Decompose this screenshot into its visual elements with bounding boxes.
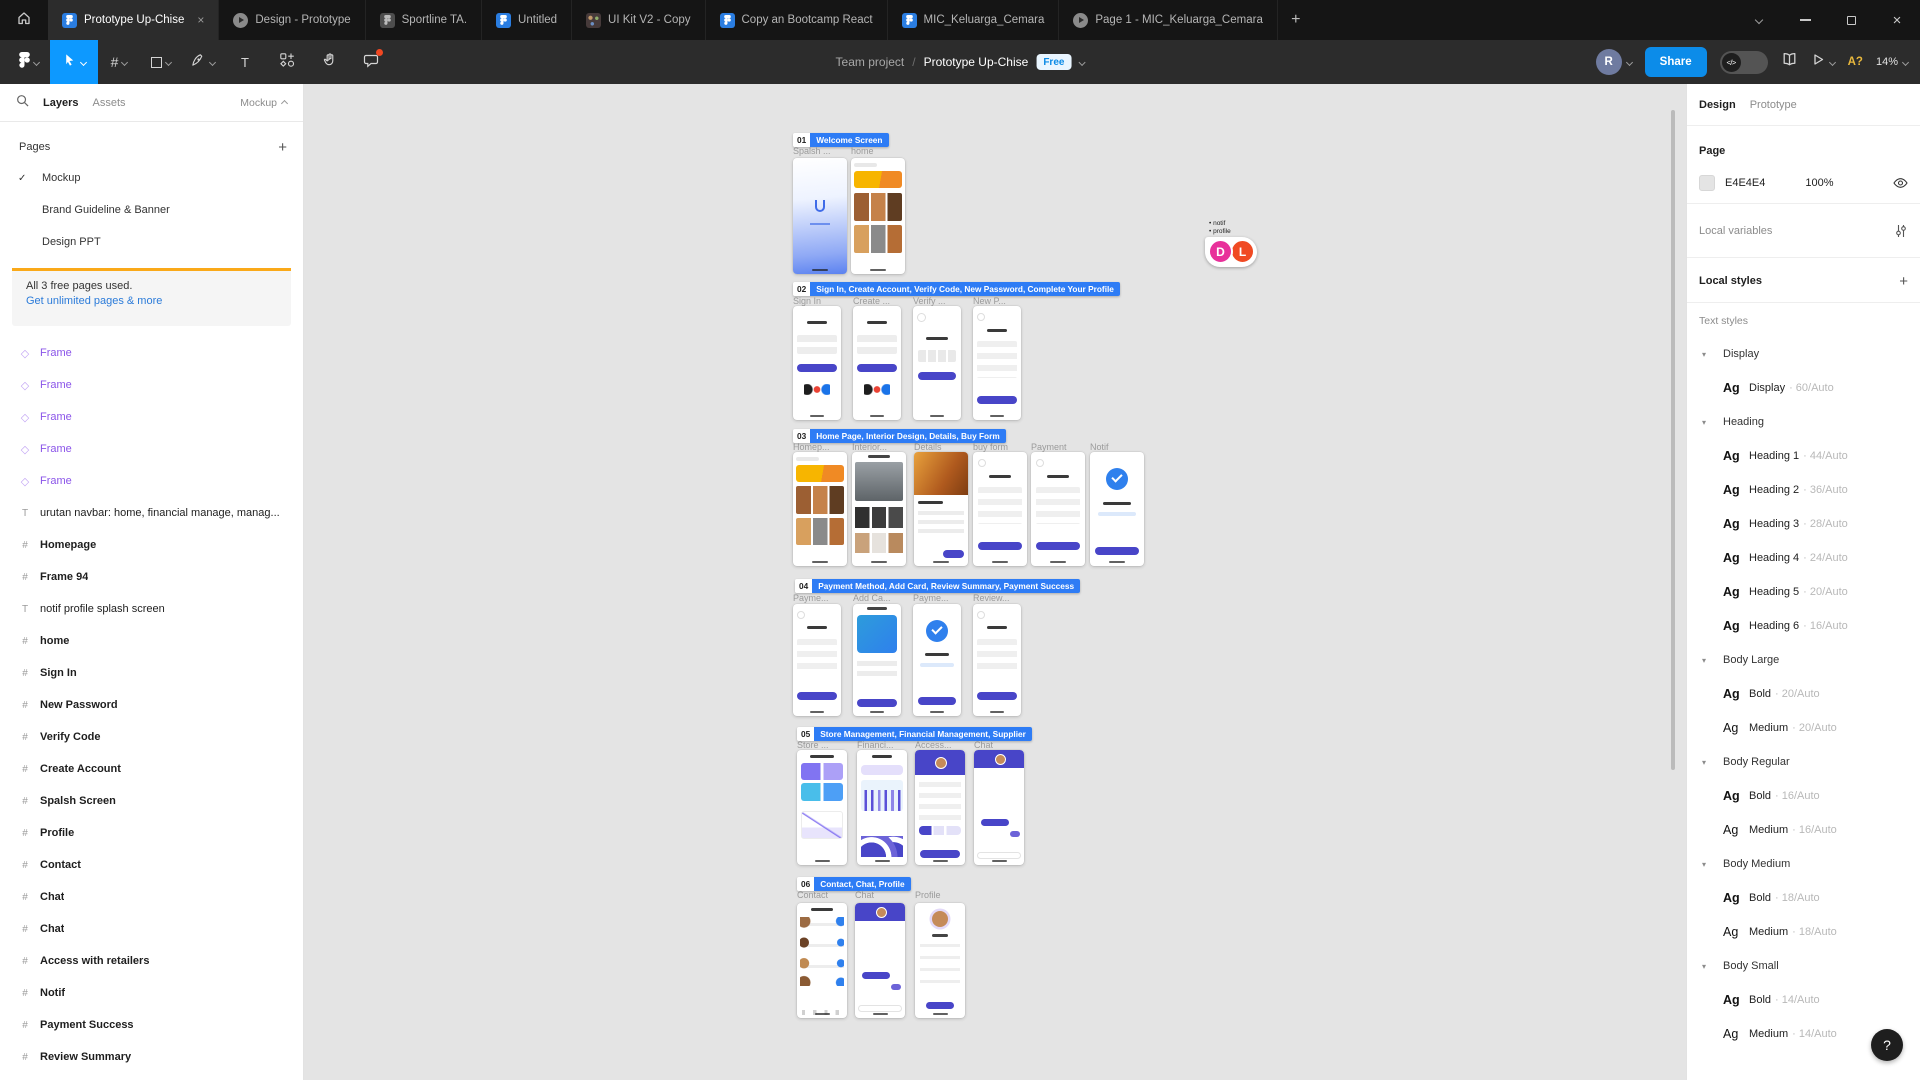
- style-sample: Ag: [1723, 483, 1745, 497]
- variables-sliders-icon[interactable]: [1894, 224, 1908, 238]
- style-row[interactable]: AgHeading 2· 36/Auto: [1687, 473, 1920, 507]
- style-group[interactable]: ▾Display: [1687, 337, 1920, 371]
- file-tab-mic-keluarga-cemara[interactable]: MIC_Keluarga_Cemara: [888, 0, 1060, 40]
- style-sample: Ag: [1723, 687, 1745, 701]
- prototype-play-icon: [1073, 13, 1088, 28]
- breadcrumb-file-name[interactable]: Prototype Up-Chise: [924, 55, 1029, 69]
- frame-title[interactable]: Notif: [1090, 442, 1109, 452]
- tab-label: MIC_Keluarga_Cemara: [924, 14, 1045, 26]
- frame-title[interactable]: Payment: [1031, 442, 1067, 452]
- canvas-frame-buy-form[interactable]: [973, 452, 1027, 566]
- section-number: 06: [797, 877, 814, 891]
- layer-row[interactable]: #Frame 94: [0, 561, 303, 593]
- shape-tool-button[interactable]: [140, 40, 182, 84]
- canvas-frame-verify-code[interactable]: [913, 306, 961, 420]
- style-sample: Ag: [1723, 381, 1745, 395]
- frame-tool-button[interactable]: #: [98, 40, 140, 84]
- tab-label: UI Kit V2 - Copy: [608, 14, 690, 26]
- layer-row[interactable]: ◇Frame: [0, 465, 303, 497]
- style-sample: Ag: [1723, 585, 1745, 599]
- layers-panel: Layers Assets Mockup Pages + ✓ Mockup Br…: [0, 84, 304, 1080]
- file-tab-design-prototype[interactable]: Design - Prototype: [219, 0, 365, 40]
- page-item-design-ppt[interactable]: Design PPT: [0, 226, 303, 258]
- component-instance-icon: ◇: [18, 411, 32, 424]
- canvas-frame-payment-success[interactable]: [913, 604, 961, 716]
- section-number: 03: [793, 429, 810, 443]
- add-page-button[interactable]: +: [278, 139, 287, 156]
- component-instance-icon: ◇: [18, 379, 32, 392]
- layer-row[interactable]: #Verify Code: [0, 721, 303, 753]
- style-row[interactable]: AgHeading 6· 16/Auto: [1687, 609, 1920, 643]
- canvas-frame-access-with-retailers[interactable]: [915, 750, 965, 865]
- frame-layer-icon: #: [18, 572, 32, 583]
- window-restore-button[interactable]: [1828, 0, 1874, 40]
- style-sample: Ag: [1723, 925, 1745, 939]
- layer-row[interactable]: ◇Frame: [0, 337, 303, 369]
- figma-logo-icon: [19, 52, 30, 73]
- layer-row[interactable]: #Profile: [0, 817, 303, 849]
- layer-row[interactable]: #New Password: [0, 689, 303, 721]
- text-layer-icon: T: [18, 604, 32, 615]
- local-styles-label: Local styles: [1699, 275, 1762, 287]
- frame-layer-icon: #: [18, 828, 32, 839]
- layer-row[interactable]: #Chat: [0, 881, 303, 913]
- upgrade-link[interactable]: Get unlimited pages & more: [26, 295, 162, 307]
- frame-layer-icon: #: [18, 764, 32, 775]
- style-sample: Ag: [1723, 1027, 1745, 1041]
- canvas-frame-details[interactable]: [914, 452, 968, 566]
- hand-tool-button[interactable]: [308, 40, 350, 84]
- canvas-frame-payment-method[interactable]: [793, 604, 841, 716]
- pages-limit-notice: All 3 free pages used. Get unlimited pag…: [12, 268, 291, 326]
- local-styles-row[interactable]: Local styles +: [1699, 266, 1908, 296]
- zoom-level: 14%: [1876, 56, 1898, 68]
- tab-prototype[interactable]: Prototype: [1750, 99, 1797, 111]
- canvas-frame-home[interactable]: [851, 158, 905, 274]
- layer-row[interactable]: #Homepage: [0, 529, 303, 561]
- file-tab-sportline[interactable]: Sportline TA.: [366, 0, 482, 40]
- color-hex-value[interactable]: E4E4E4: [1725, 177, 1765, 189]
- frame-title[interactable]: Payme...: [793, 593, 829, 603]
- layer-list: ◇Frame ◇Frame ◇Frame ◇Frame ◇Frame Turut…: [0, 337, 303, 1080]
- window-menu-chevron-icon[interactable]: [1736, 0, 1782, 40]
- frame-title[interactable]: Chat: [974, 740, 993, 750]
- section-title: Welcome Screen: [810, 133, 888, 147]
- section-number: 01: [793, 133, 810, 147]
- palette-icon: [586, 13, 601, 28]
- figma-file-icon: [720, 13, 735, 28]
- chevron-down-icon: [165, 58, 172, 65]
- layer-row[interactable]: #Review Summary: [0, 1041, 303, 1073]
- layer-row[interactable]: Turutan navbar: home, financial manage, …: [0, 497, 303, 529]
- style-row[interactable]: AgHeading 3· 28/Auto: [1687, 507, 1920, 541]
- canvas-frame-review-summary[interactable]: [973, 604, 1021, 716]
- style-row[interactable]: AgHeading 4· 24/Auto: [1687, 541, 1920, 575]
- file-tab-ui-kit-v2[interactable]: UI Kit V2 - Copy: [572, 0, 705, 40]
- figma-menu-button[interactable]: [8, 40, 50, 84]
- chevron-up-icon: [281, 100, 288, 107]
- cursor-icon: [62, 52, 77, 72]
- prototype-play-icon: [233, 13, 248, 28]
- canvas-frame-store-management[interactable]: [797, 750, 847, 865]
- layer-row[interactable]: #home: [0, 625, 303, 657]
- page-item-mockup[interactable]: ✓ Mockup: [0, 162, 303, 194]
- disclosure-triangle-icon[interactable]: ▾: [1702, 350, 1718, 359]
- code-icon: </>: [1722, 53, 1741, 72]
- tab-label: Sportline TA.: [402, 14, 467, 26]
- style-sample: Ag: [1723, 891, 1745, 905]
- chevron-down-icon: [1902, 58, 1909, 65]
- disclosure-triangle-icon[interactable]: ▾: [1702, 418, 1718, 427]
- style-sample: Ag: [1723, 517, 1745, 531]
- section-number: 02: [793, 282, 810, 296]
- frame-title[interactable]: Sign In: [793, 296, 821, 306]
- chevron-down-icon: [33, 58, 40, 65]
- frame-title[interactable]: Create ...: [853, 296, 890, 306]
- section-badge-03[interactable]: 03 Home Page, Interior Design, Details, …: [793, 429, 1006, 443]
- notification-dot: [376, 49, 383, 56]
- pen-icon: [191, 52, 206, 72]
- section-badge-01[interactable]: 01 Welcome Screen: [793, 133, 889, 147]
- hand-icon: [322, 52, 337, 72]
- frame-layer-icon: #: [18, 988, 32, 999]
- style-row[interactable]: AgBold· 20/Auto: [1687, 677, 1920, 711]
- layer-row[interactable]: #Access with retailers: [0, 945, 303, 977]
- home-button[interactable]: [0, 0, 48, 40]
- file-tab-prototype-up-chise[interactable]: Prototype Up-Chise ×: [48, 0, 219, 40]
- style-row[interactable]: AgMedium· 18/Auto: [1687, 915, 1920, 949]
- page-name: Design PPT: [42, 236, 101, 248]
- tab-label: Page 1 - MIC_Keluarga_Cemara: [1095, 14, 1262, 26]
- style-group[interactable]: ▾Heading: [1687, 405, 1920, 439]
- canvas-frame-sign-in[interactable]: [793, 306, 841, 420]
- section-badge-05[interactable]: 05 Store Management, Financial Managemen…: [797, 727, 1032, 741]
- canvas-frame-contact[interactable]: [797, 903, 847, 1018]
- chevron-down-icon: [1829, 58, 1836, 65]
- disclosure-triangle-icon[interactable]: ▾: [1702, 656, 1718, 665]
- play-icon: [1811, 52, 1825, 72]
- zoom-menu[interactable]: 14%: [1876, 56, 1908, 68]
- frame-layer-icon: #: [18, 1020, 32, 1031]
- component-instance-icon: ◇: [18, 443, 32, 456]
- frame-title[interactable]: Review...: [973, 593, 1010, 603]
- frame-layer-icon: #: [18, 924, 32, 935]
- canvas[interactable]: 01 Welcome Screen Spalsh ... home 02 Sig…: [304, 84, 1686, 1080]
- frame-title[interactable]: Access...: [915, 740, 952, 750]
- vertical-scrollbar[interactable]: [1671, 110, 1675, 770]
- section-badge-06[interactable]: 06 Contact, Chat, Profile: [797, 877, 911, 891]
- page-color-row: E4E4E4 100%: [1699, 168, 1908, 198]
- tab-label: Prototype Up-Chise: [84, 14, 184, 26]
- frame-title[interactable]: Financi...: [857, 740, 894, 750]
- present-button[interactable]: [1811, 52, 1835, 72]
- frame-title[interactable]: Payme...: [913, 593, 949, 603]
- text-styles-header: Text styles: [1699, 308, 1748, 334]
- tab-assets[interactable]: Assets: [92, 97, 125, 109]
- frame-title[interactable]: buy form: [973, 442, 1008, 452]
- section-title: Home Page, Interior Design, Details, Buy…: [810, 429, 1006, 443]
- close-tab-icon[interactable]: ×: [197, 14, 204, 26]
- style-row[interactable]: AgBold· 14/Auto: [1687, 983, 1920, 1017]
- frame-layer-icon: #: [18, 860, 32, 871]
- canvas-frame-profile[interactable]: [915, 903, 965, 1018]
- chevron-down-icon: [209, 58, 216, 65]
- frame-title[interactable]: Contact: [797, 890, 828, 900]
- section-badge-02[interactable]: 02 Sign In, Create Account, Verify Code,…: [793, 282, 1120, 296]
- frame-layer-icon: #: [18, 732, 32, 743]
- chevron-down-icon: [1626, 58, 1633, 65]
- frame-layer-icon: #: [18, 956, 32, 967]
- file-tab-untitled[interactable]: Untitled: [482, 0, 572, 40]
- section-title: Sign In, Create Account, Verify Code, Ne…: [810, 282, 1120, 296]
- component-instance-icon: ◇: [18, 475, 32, 488]
- style-row[interactable]: AgBold· 18/Auto: [1687, 881, 1920, 915]
- library-book-icon[interactable]: [1781, 52, 1798, 72]
- window-controls: ×: [1736, 0, 1920, 40]
- opacity-value[interactable]: 100%: [1805, 177, 1833, 189]
- section-title: Store Management, Financial Management, …: [814, 727, 1032, 741]
- local-variables-row[interactable]: Local variables: [1699, 216, 1908, 246]
- frame-layer-icon: #: [18, 1052, 32, 1063]
- page-dropdown-label: Mockup: [240, 97, 277, 109]
- frame-layer-icon: #: [18, 700, 32, 711]
- layer-row[interactable]: #Payment Success: [0, 1009, 303, 1041]
- plan-badge: Free: [1036, 54, 1071, 70]
- frame-layer-icon: #: [18, 796, 32, 807]
- frame-layer-icon: #: [18, 668, 32, 679]
- layer-row[interactable]: #Sign In: [0, 657, 303, 689]
- notice-message: All 3 free pages used.: [26, 280, 277, 292]
- canvas-frame-homepage[interactable]: [793, 452, 847, 566]
- style-sample: Ag: [1723, 823, 1745, 837]
- style-row[interactable]: AgDisplay· 60/Auto: [1687, 371, 1920, 405]
- frame-title[interactable]: home: [851, 146, 874, 156]
- disclosure-triangle-icon[interactable]: ▾: [1702, 962, 1718, 971]
- check-icon: ✓: [18, 173, 34, 184]
- layer-row[interactable]: #Create Account: [0, 753, 303, 785]
- frame-layer-icon: #: [18, 636, 32, 647]
- actions-icon: [279, 52, 295, 73]
- tab-design[interactable]: Design: [1699, 99, 1736, 111]
- section-title: Payment Method, Add Card, Review Summary…: [812, 579, 1080, 593]
- frame-title[interactable]: Homep...: [793, 442, 830, 452]
- collaborator-avatar-l: L: [1230, 239, 1255, 264]
- figma-file-icon: [380, 13, 395, 28]
- frame-title[interactable]: Spalsh ...: [793, 146, 831, 156]
- disclosure-triangle-icon[interactable]: ▾: [1702, 860, 1718, 869]
- canvas-frame-create-account[interactable]: [853, 306, 901, 420]
- tab-label: Copy an Bootcamp React: [742, 14, 873, 26]
- pages-header: Pages: [19, 141, 50, 153]
- tab-label: Design - Prototype: [255, 14, 350, 26]
- toolbar: # T Team project / Prototype Up-Chise Fr…: [0, 40, 1920, 84]
- style-group[interactable]: ▾Body Large: [1687, 643, 1920, 677]
- collaborator-avatar-d: D: [1208, 239, 1233, 264]
- style-row[interactable]: AgMedium· 16/Auto: [1687, 813, 1920, 847]
- frame-title[interactable]: Add Ca...: [853, 593, 891, 603]
- frame-title[interactable]: New P...: [973, 296, 1006, 306]
- section-badge-04[interactable]: 04 Payment Method, Add Card, Review Summ…: [795, 579, 1080, 593]
- style-sample: Ag: [1723, 721, 1745, 735]
- layer-row[interactable]: ◇Frame: [0, 401, 303, 433]
- page-section-title: Page: [1699, 136, 1725, 166]
- current-user-menu[interactable]: R: [1596, 49, 1632, 75]
- style-sample: Ag: [1723, 993, 1745, 1007]
- style-row[interactable]: AgMedium· 20/Auto: [1687, 711, 1920, 745]
- canvas-frame-add-card[interactable]: [853, 604, 901, 716]
- page-dropdown[interactable]: Mockup: [240, 97, 287, 109]
- style-group[interactable]: ▾Body Regular: [1687, 745, 1920, 779]
- frame-title[interactable]: Interior...: [852, 442, 887, 452]
- avatar: R: [1596, 49, 1622, 75]
- window-close-button[interactable]: ×: [1874, 0, 1920, 40]
- layer-row[interactable]: #Chat: [0, 913, 303, 945]
- disclosure-triangle-icon[interactable]: ▾: [1702, 758, 1718, 767]
- frame-title[interactable]: Details: [914, 442, 942, 452]
- frame-title[interactable]: Store ...: [797, 740, 829, 750]
- tab-layers[interactable]: Layers: [43, 97, 78, 109]
- style-sample: Ag: [1723, 789, 1745, 803]
- frame-title[interactable]: Chat: [855, 890, 874, 900]
- canvas-frame-chat-2[interactable]: [855, 903, 905, 1018]
- style-row[interactable]: AgHeading 1· 44/Auto: [1687, 439, 1920, 473]
- frame-title[interactable]: Verify ...: [913, 296, 946, 306]
- figma-file-icon: [62, 13, 77, 28]
- text-layer-icon: T: [18, 508, 32, 519]
- search-icon[interactable]: [16, 94, 29, 112]
- text-styles-list: ▾Display AgDisplay· 60/Auto ▾Heading AgH…: [1687, 337, 1920, 1080]
- text-icon: T: [241, 55, 249, 70]
- canvas-frame-spalsh-screen[interactable]: [793, 158, 847, 274]
- frame-title[interactable]: Profile: [915, 890, 941, 900]
- component-instance-icon: ◇: [18, 347, 32, 360]
- canvas-frame-payment[interactable]: [1031, 452, 1085, 566]
- frame-icon: #: [111, 54, 119, 70]
- style-sample: Ag: [1723, 449, 1745, 463]
- share-button[interactable]: Share: [1645, 47, 1707, 77]
- pen-tool-button[interactable]: [182, 40, 224, 84]
- figma-file-icon: [496, 13, 511, 28]
- section-title: Contact, Chat, Profile: [814, 877, 910, 891]
- add-style-plus-icon[interactable]: +: [1899, 273, 1908, 290]
- color-swatch[interactable]: [1699, 175, 1715, 191]
- page-name: Mockup: [42, 172, 81, 184]
- layer-row[interactable]: Tnotif profile splash screen: [0, 593, 303, 625]
- file-tab-page1-mic-keluarga-cemara[interactable]: Page 1 - MIC_Keluarga_Cemara: [1059, 0, 1277, 40]
- layer-row[interactable]: ◇Frame: [0, 369, 303, 401]
- style-group[interactable]: ▾Body Small: [1687, 949, 1920, 983]
- collaborator-note: • notif • profile: [1209, 220, 1231, 236]
- style-sample: Ag: [1723, 551, 1745, 565]
- frame-layer-icon: #: [18, 540, 32, 551]
- style-row[interactable]: AgBold· 16/Auto: [1687, 779, 1920, 813]
- canvas-frame-new-password[interactable]: [973, 306, 1021, 420]
- canvas-frame-interior-design[interactable]: [852, 452, 906, 566]
- titlebar: Prototype Up-Chise × Design - Prototype …: [0, 0, 1920, 40]
- page-item-brand-guideline[interactable]: Brand Guideline & Banner: [0, 194, 303, 226]
- frame-layer-icon: #: [18, 892, 32, 903]
- collaborator-cursors: D L: [1205, 237, 1257, 267]
- breadcrumb: Team project / Prototype Up-Chise Free: [836, 40, 1085, 84]
- section-number: 04: [795, 579, 812, 593]
- style-group[interactable]: ▾Body Medium: [1687, 847, 1920, 881]
- help-button[interactable]: ?: [1871, 1029, 1903, 1061]
- breadcrumb-divider: /: [912, 55, 915, 69]
- page-name: Brand Guideline & Banner: [42, 204, 170, 216]
- design-panel: Design Prototype Page E4E4E4 100% Local …: [1686, 84, 1920, 1080]
- chevron-down-icon: [121, 58, 128, 65]
- layer-row[interactable]: #Contact: [0, 849, 303, 881]
- file-tab-copy-an-bootcamp-react[interactable]: Copy an Bootcamp React: [706, 0, 888, 40]
- dev-mode-toggle[interactable]: </>: [1720, 51, 1768, 74]
- breadcrumb-project[interactable]: Team project: [836, 55, 905, 69]
- style-row[interactable]: AgHeading 5· 20/Auto: [1687, 575, 1920, 609]
- rectangle-icon: [151, 57, 162, 68]
- canvas-frame-notif-congratulations[interactable]: [1090, 452, 1144, 566]
- figma-file-icon: [902, 13, 917, 28]
- comment-tool-button[interactable]: [350, 40, 392, 84]
- missing-fonts-indicator[interactable]: A?: [1848, 56, 1863, 68]
- layer-row[interactable]: #Spalsh Screen: [0, 785, 303, 817]
- actions-tool-button[interactable]: [266, 40, 308, 84]
- tab-label: Untitled: [518, 14, 557, 26]
- text-tool-button[interactable]: T: [224, 40, 266, 84]
- new-tab-button[interactable]: +: [1278, 0, 1314, 40]
- chevron-down-icon[interactable]: [1078, 58, 1085, 65]
- window-minimize-button[interactable]: [1782, 0, 1828, 40]
- home-icon: [16, 10, 32, 31]
- layer-row[interactable]: ◇Frame: [0, 433, 303, 465]
- local-variables-label: Local variables: [1699, 225, 1772, 237]
- canvas-frame-chat[interactable]: [974, 750, 1024, 865]
- style-sample: Ag: [1723, 619, 1745, 633]
- visibility-eye-icon[interactable]: [1893, 177, 1908, 189]
- layer-row[interactable]: #Notif: [0, 977, 303, 1009]
- canvas-frame-financial-management[interactable]: [857, 750, 907, 865]
- section-number: 05: [797, 727, 814, 741]
- move-tool-button[interactable]: [50, 40, 98, 84]
- chevron-down-icon: [80, 58, 87, 65]
